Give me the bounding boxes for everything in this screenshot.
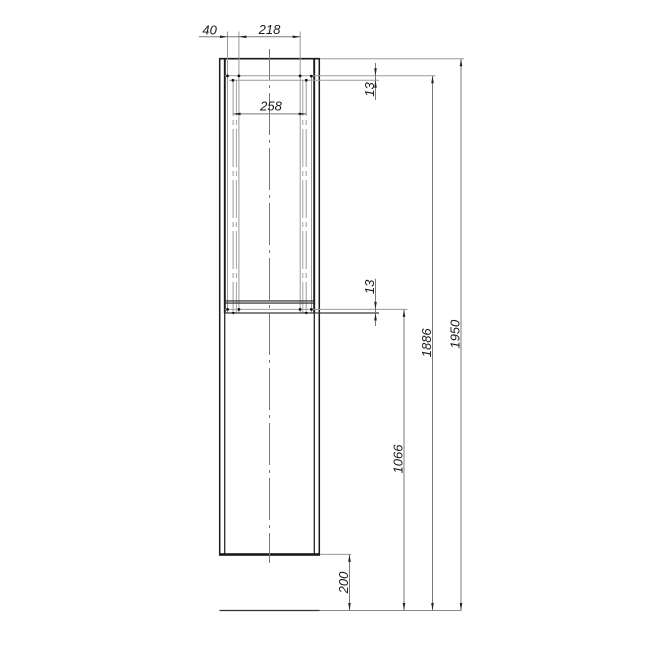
svg-text:258: 258 [259,98,282,113]
svg-text:40: 40 [202,23,217,38]
svg-text:200: 200 [336,571,351,594]
svg-text:1950: 1950 [448,319,463,349]
svg-text:13: 13 [362,82,377,97]
svg-text:1886: 1886 [419,328,434,358]
svg-text:1066: 1066 [391,444,406,474]
svg-text:218: 218 [258,22,281,37]
svg-text:13: 13 [362,279,377,294]
